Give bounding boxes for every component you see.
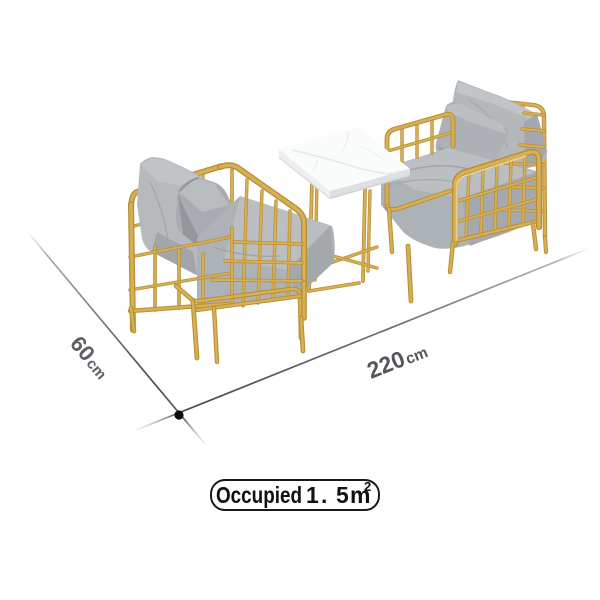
svg-text:1: 1 <box>306 482 319 508</box>
svg-text:5: 5 <box>336 482 349 508</box>
svg-text:.: . <box>321 482 327 508</box>
svg-text:2: 2 <box>364 479 371 494</box>
svg-text:Occupied: Occupied <box>216 482 302 508</box>
svg-text:60cm: 60cm <box>65 331 115 384</box>
svg-text:220cm: 220cm <box>363 337 430 384</box>
